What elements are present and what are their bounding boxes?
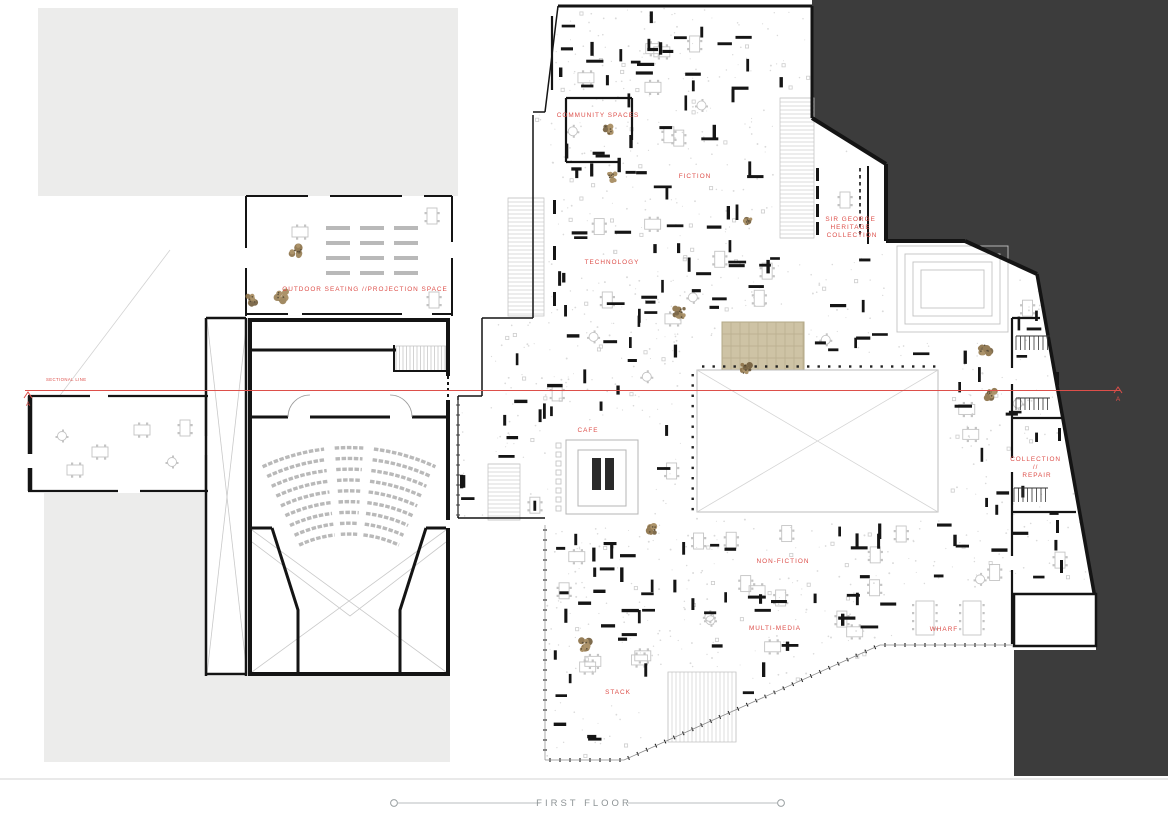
- section-marker-start: A: [26, 401, 31, 408]
- courtyard: [692, 365, 939, 512]
- title-rule-endpoint-right: [778, 800, 785, 807]
- label-wharf: WHARF: [930, 626, 958, 633]
- label-cafe: CAFE: [577, 427, 598, 434]
- mat-block: [722, 322, 804, 370]
- label-technology: TECHNOLOGY: [585, 259, 640, 266]
- sectional-line-label: SECTIONAL LINE: [46, 377, 87, 382]
- label-outdoor-seating: OUTDOOR SEATING //PROJECTION SPACE: [282, 286, 448, 293]
- title-rule-endpoint-left: [391, 800, 398, 807]
- sheet-title: FIRST FLOOR: [536, 798, 632, 809]
- site-block-topleft: [38, 8, 458, 196]
- sheet-title-group: FIRST FLOOR: [391, 798, 785, 809]
- label-community-spaces: COMMUNITY SPACES: [557, 112, 640, 119]
- label-heritage: SIR GEORGE HERITAGE COLLECTION: [825, 216, 878, 239]
- label-multi-media: MULTI-MEDIA: [749, 625, 801, 632]
- section-marker-end: A: [1116, 396, 1121, 403]
- west-wing-floor: [28, 396, 208, 493]
- floor-plan-sheet: COMMUNITY SPACES FICTION SIR GEORGE HERI…: [0, 0, 1168, 826]
- label-non-fiction: NON-FICTION: [757, 558, 810, 565]
- label-fiction: FICTION: [679, 173, 712, 180]
- label-stack: STACK: [605, 689, 631, 696]
- floor-plan-canvas: COMMUNITY SPACES FICTION SIR GEORGE HERI…: [0, 0, 1168, 826]
